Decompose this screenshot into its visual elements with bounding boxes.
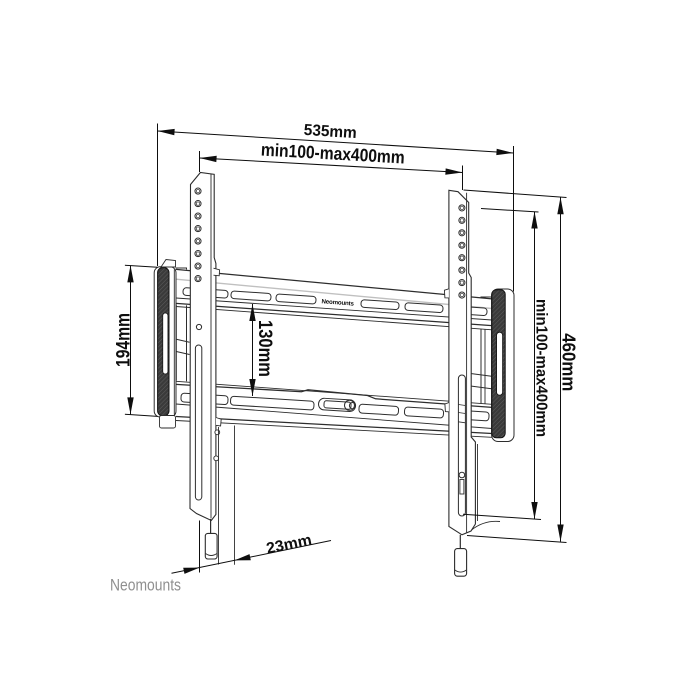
svg-text:130mm: 130mm bbox=[254, 320, 275, 377]
svg-text:194mm: 194mm bbox=[114, 313, 135, 367]
svg-text:Neomounts: Neomounts bbox=[110, 576, 181, 595]
svg-text:min100-max400mm: min100-max400mm bbox=[533, 299, 550, 437]
svg-text:535mm: 535mm bbox=[303, 122, 357, 142]
svg-text:460mm: 460mm bbox=[558, 333, 578, 391]
